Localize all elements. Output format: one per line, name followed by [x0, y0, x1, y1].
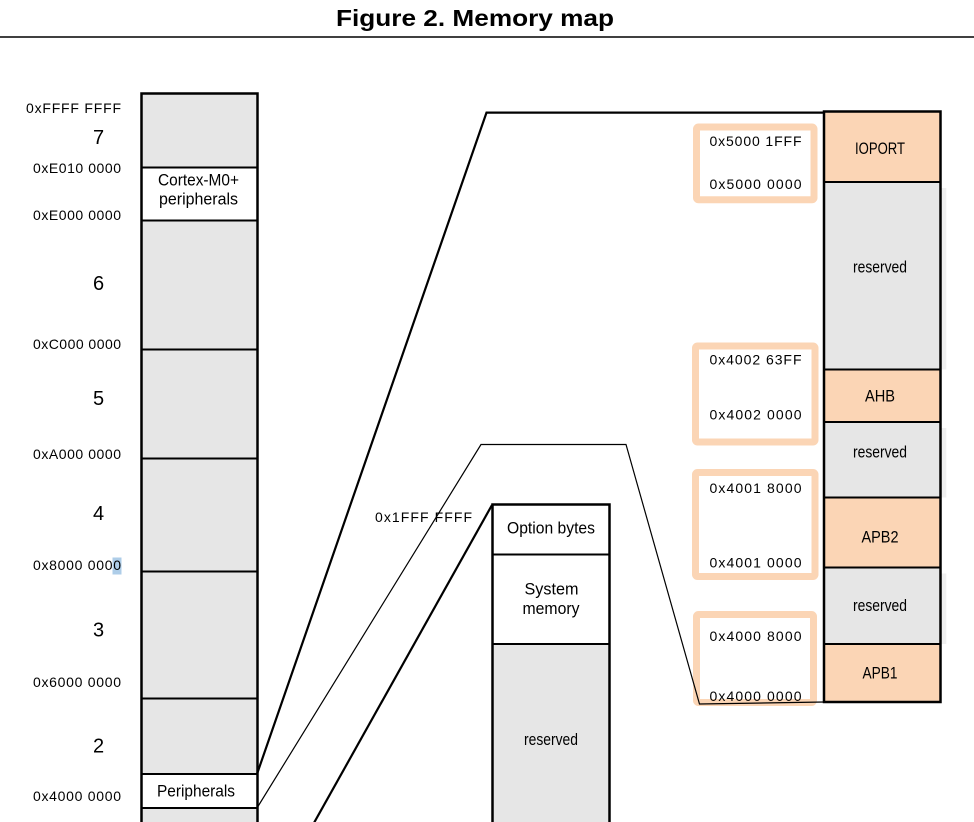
svg-text:0xFFFF FFFF: 0xFFFF FFFF [26, 100, 121, 116]
svg-text:0xC000 0000: 0xC000 0000 [33, 336, 121, 352]
svg-text:memory: memory [523, 599, 580, 618]
svg-text:0x4000 0000: 0x4000 0000 [710, 688, 802, 704]
svg-text:0xA000 0000: 0xA000 0000 [33, 446, 121, 462]
svg-text:2: 2 [93, 736, 104, 758]
svg-text:0x4001 0000: 0x4001 0000 [710, 554, 802, 570]
svg-text:Figure 2. Memory map: Figure 2. Memory map [336, 5, 614, 31]
svg-text:4: 4 [93, 503, 104, 525]
svg-text:Peripherals: Peripherals [157, 782, 235, 801]
svg-text:0x4001 8000: 0x4001 8000 [710, 480, 802, 496]
svg-text:0x4002 63FF: 0x4002 63FF [710, 352, 802, 368]
svg-text:5: 5 [93, 388, 104, 410]
svg-text:7: 7 [93, 127, 104, 149]
svg-text:0x1FFF FFFF: 0x1FFF FFFF [375, 509, 472, 525]
svg-text:reserved: reserved [524, 730, 578, 749]
svg-text:0xE010 0000: 0xE010 0000 [33, 160, 121, 176]
svg-text:Option bytes: Option bytes [507, 519, 595, 538]
svg-text:peripherals: peripherals [159, 190, 238, 209]
svg-text:0x4000 8000: 0x4000 8000 [710, 628, 802, 644]
svg-text:0x4000 0000: 0x4000 0000 [33, 788, 121, 804]
svg-text:reserved: reserved [853, 596, 907, 615]
svg-text:reserved: reserved [853, 443, 907, 462]
svg-text:IOPORT: IOPORT [855, 139, 905, 158]
svg-text:0x5000 0000: 0x5000 0000 [710, 176, 802, 192]
svg-text:Cortex-M0+: Cortex-M0+ [158, 171, 239, 190]
svg-text:6: 6 [93, 273, 104, 295]
svg-text:0x5000 1FFF: 0x5000 1FFF [710, 133, 802, 149]
svg-text:0x6000 0000: 0x6000 0000 [33, 674, 121, 690]
svg-text:AHB: AHB [865, 387, 895, 406]
svg-text:System: System [525, 580, 579, 599]
svg-text:0xE000 0000: 0xE000 0000 [33, 207, 121, 223]
svg-text:APB2: APB2 [862, 528, 899, 547]
svg-text:APB1: APB1 [863, 664, 898, 683]
svg-text:3: 3 [93, 620, 104, 642]
svg-text:0x4002 0000: 0x4002 0000 [710, 407, 802, 423]
svg-text:0x8000 0000: 0x8000 0000 [33, 557, 121, 573]
svg-text:reserved: reserved [853, 258, 907, 277]
